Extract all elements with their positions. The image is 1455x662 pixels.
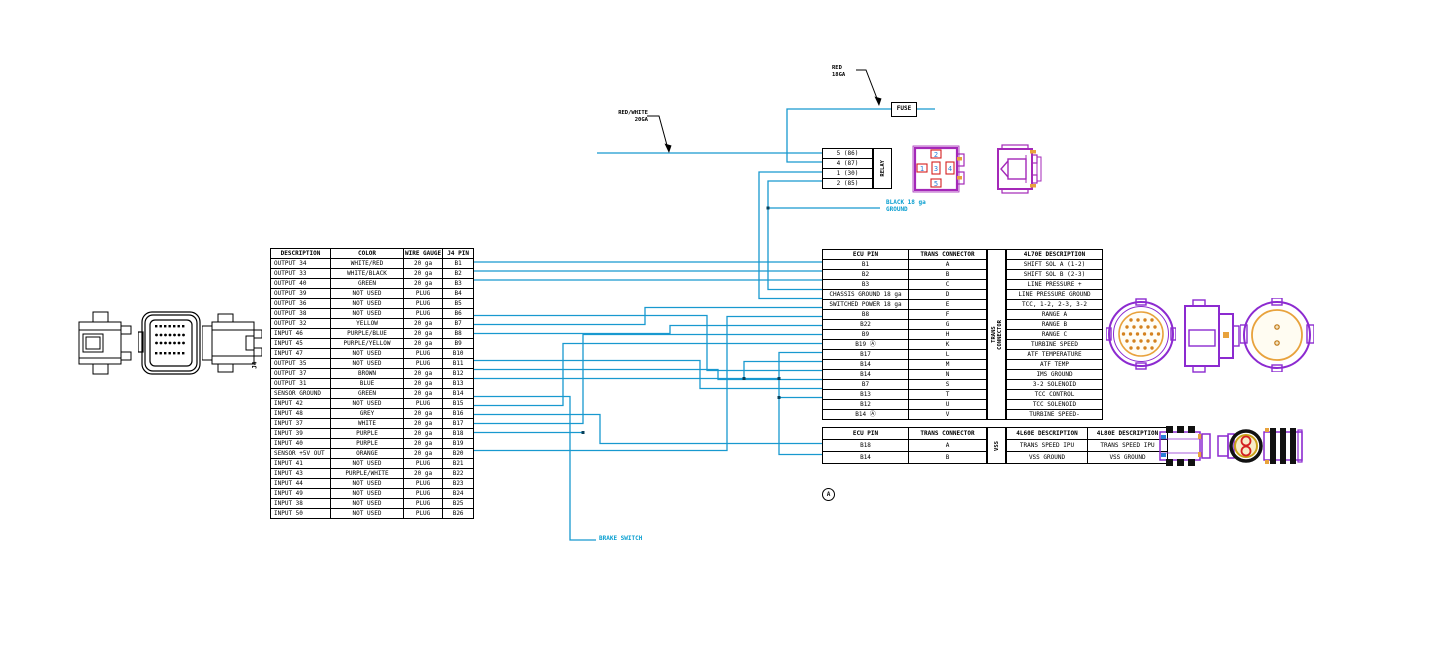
wire-b14-m: [779, 353, 822, 379]
cell: T: [909, 390, 987, 400]
cell: GREY: [331, 409, 404, 419]
cell: A: [909, 440, 987, 452]
cell: S: [909, 380, 987, 390]
cell: PLUG: [404, 399, 443, 409]
cell: TURBINE SPEED: [1007, 340, 1103, 350]
table-row: SENSOR GROUNDGREEN20 gaB14: [271, 389, 474, 399]
table-row: OUTPUT 33WHITE/BLACK20 gaB2: [271, 269, 474, 279]
cell: INPUT 50: [271, 509, 331, 519]
cell: PLUG: [404, 489, 443, 499]
relay-side-strip: RELAY: [873, 148, 892, 189]
cell: INPUT 44: [271, 479, 331, 489]
table-row: INPUT 38NOT USEDPLUGB25: [271, 499, 474, 509]
table-row: INPUT 48GREY20 gaB16: [271, 409, 474, 419]
cell: 2 (85): [823, 179, 873, 189]
table-row: B7S: [823, 380, 987, 390]
cell: 20 ga: [404, 429, 443, 439]
cell: B1: [443, 259, 474, 269]
table-row: B19 ⒶK: [823, 340, 987, 350]
cell: B3: [443, 279, 474, 289]
table-row: SWITCHED POWER 18 gaE: [823, 300, 987, 310]
vss-sensor-front-icon: [1218, 431, 1261, 461]
cell: B5: [443, 299, 474, 309]
cell: B3: [823, 280, 909, 290]
table-row: TURBINE SPEED-: [1007, 410, 1103, 420]
cell: OUTPUT 39: [271, 289, 331, 299]
table-row: OUTPUT 37BROWN20 gaB12: [271, 369, 474, 379]
table-row: TCC, 1-2, 2-3, 3-2: [1007, 300, 1103, 310]
red-wire-label: RED 18GA: [832, 65, 856, 78]
cell: NOT USED: [331, 299, 404, 309]
cell: PURPLE/WHITE: [331, 469, 404, 479]
cell: INPUT 37: [271, 419, 331, 429]
table-row: INPUT 42NOT USEDPLUGB15: [271, 399, 474, 409]
cell: B14: [823, 370, 909, 380]
cell: H: [909, 330, 987, 340]
wire-b22-g: [460, 317, 822, 451]
cell: SHIFT SOL A (1-2): [1007, 260, 1103, 270]
cell: B9: [823, 330, 909, 340]
cell: L: [909, 350, 987, 360]
cell: B17: [823, 350, 909, 360]
cell: OUTPUT 36: [271, 299, 331, 309]
table-row: 2 (85): [823, 179, 873, 189]
cell: SWITCHED POWER 18 ga: [823, 300, 909, 310]
col-header: J4 PIN: [443, 249, 474, 259]
cell: SENSOR +5V OUT: [271, 449, 331, 459]
table-row: 4 (87): [823, 159, 873, 169]
cell: F: [909, 310, 987, 320]
cell: INPUT 41: [271, 459, 331, 469]
table-row: B9H: [823, 330, 987, 340]
cell: TCC, 1-2, 2-3, 3-2: [1007, 300, 1103, 310]
cell: C: [909, 280, 987, 290]
table-row: INPUT 40PURPLE20 gaB19: [271, 439, 474, 449]
cell: INPUT 46: [271, 329, 331, 339]
vss-sensor-rear-icon: [1264, 428, 1302, 464]
cell: 20 ga: [404, 439, 443, 449]
trans-connector-side-icon: [1180, 296, 1240, 374]
cell: 20 ga: [404, 409, 443, 419]
cell: LINE PRESSURE GROUND: [1007, 290, 1103, 300]
cell: B8: [443, 329, 474, 339]
relay-pin-table: 5 (86)4 (87)1 (30)2 (85): [822, 148, 873, 189]
cell: 20 ga: [404, 449, 443, 459]
table-row: ATF TEMP: [1007, 360, 1103, 370]
cell: WHITE/BLACK: [331, 269, 404, 279]
table-row: VSS GROUNDVSS GROUND: [1007, 452, 1168, 464]
fuse-box: FUSE: [891, 102, 917, 117]
cell: B14: [443, 389, 474, 399]
relay-pin-2: 2: [934, 151, 938, 159]
table-row: B14 ⒶV: [823, 410, 987, 420]
cell: OUTPUT 31: [271, 379, 331, 389]
cell: INPUT 49: [271, 489, 331, 499]
cell: U: [909, 400, 987, 410]
cell: B24: [443, 489, 474, 499]
ecu-trans-table-right: 4L70E DESCRIPTIONSHIFT SOL A (1-2)SHIFT …: [1006, 249, 1103, 420]
cell: OUTPUT 38: [271, 309, 331, 319]
table-row: TRANS SPEED IPUTRANS SPEED IPU: [1007, 440, 1168, 452]
trans-connector-strip: TRANS CONNECTOR: [987, 249, 1006, 420]
cell: OUTPUT 35: [271, 359, 331, 369]
cell: TRANS SPEED IPU: [1088, 440, 1168, 452]
col-header: 4L80E DESCRIPTION: [1088, 428, 1168, 440]
table-row: IMS GROUND: [1007, 370, 1103, 380]
cell: INPUT 38: [271, 499, 331, 509]
cell: B6: [443, 309, 474, 319]
cell: B23: [443, 479, 474, 489]
cell: INPUT 39: [271, 429, 331, 439]
cell: 20 ga: [404, 319, 443, 329]
vss-table: ECU PINTRANS CONNECTORB18AB14B VSS 4L60E…: [822, 427, 1168, 464]
cell: INPUT 45: [271, 339, 331, 349]
cell: 3-2 SOLENOID: [1007, 380, 1103, 390]
col-header: ECU PIN: [823, 250, 909, 260]
cell: B13: [443, 379, 474, 389]
table-row: INPUT 39PURPLE20 gaB18: [271, 429, 474, 439]
cell: GREEN: [331, 389, 404, 399]
cell: 20 ga: [404, 329, 443, 339]
table-row: OUTPUT 32YELLOW20 gaB7: [271, 319, 474, 329]
cell: TCC SOLENOID: [1007, 400, 1103, 410]
relay-socket-side-icon: [990, 143, 1046, 195]
cell: NOT USED: [331, 359, 404, 369]
j4-pin-table: DESCRIPTIONCOLORWIRE GAUGEJ4 PINOUTPUT 3…: [270, 248, 474, 519]
table-row: 1 (30): [823, 169, 873, 179]
ecu-trans-table: ECU PINTRANS CONNECTORB1AB2BB3CCHASSIS G…: [822, 249, 1103, 420]
cell: B13: [823, 390, 909, 400]
table-row: B8F: [823, 310, 987, 320]
cell: INPUT 43: [271, 469, 331, 479]
cell: 20 ga: [404, 339, 443, 349]
cell: B2: [823, 270, 909, 280]
j4-connector-side-view-1-icon: [73, 306, 137, 376]
table-row: B13T: [823, 390, 987, 400]
table-row: RANGE A: [1007, 310, 1103, 320]
table-row: B12U: [823, 400, 987, 410]
cell: B: [909, 452, 987, 464]
col-header: 4L70E DESCRIPTION: [1007, 250, 1103, 260]
vss-sensor-connectors-icon: [1158, 424, 1304, 468]
cell: M: [909, 360, 987, 370]
cell: B10: [443, 349, 474, 359]
cell: B4: [443, 289, 474, 299]
cell: PURPLE/YELLOW: [331, 339, 404, 349]
cell: NOT USED: [331, 509, 404, 519]
col-header: TRANS CONNECTOR: [909, 250, 987, 260]
cell: B22: [823, 320, 909, 330]
cell: PLUG: [404, 299, 443, 309]
table-row: INPUT 41NOT USEDPLUGB21: [271, 459, 474, 469]
cell: B21: [443, 459, 474, 469]
relay-pin-5: 5: [934, 180, 938, 188]
cell: B26: [443, 509, 474, 519]
relay-label: RELAY: [880, 160, 886, 177]
cell: PLUG: [404, 499, 443, 509]
cell: B15: [443, 399, 474, 409]
table-row: OUTPUT 31BLUE20 gaB13: [271, 379, 474, 389]
cell: K: [909, 340, 987, 350]
table-row: B14N: [823, 370, 987, 380]
table-row: CHASSIS GROUND 18 gaD: [823, 290, 987, 300]
cell: NOT USED: [331, 459, 404, 469]
cell: 20 ga: [404, 379, 443, 389]
j4-connector-label: J4: [252, 362, 259, 369]
relay-pin-3: 3: [934, 165, 938, 173]
cell: B2: [443, 269, 474, 279]
cell: B18: [823, 440, 909, 452]
table-row: 3-2 SOLENOID: [1007, 380, 1103, 390]
cell: BLUE: [331, 379, 404, 389]
table-row: RANGE B: [1007, 320, 1103, 330]
cell: PLUG: [404, 479, 443, 489]
table-row: B17L: [823, 350, 987, 360]
col-header: 4L60E DESCRIPTION: [1007, 428, 1088, 440]
cell: NOT USED: [331, 399, 404, 409]
cell: B19 Ⓐ: [823, 340, 909, 350]
table-row: SHIFT SOL A (1-2): [1007, 260, 1103, 270]
cell: B1: [823, 260, 909, 270]
table-row: RANGE C: [1007, 330, 1103, 340]
leader-arrow-redwhite: [665, 144, 672, 154]
leader-line-red: [856, 70, 878, 101]
cell: 20 ga: [404, 389, 443, 399]
vss-connector-round-2pin-icon: [1240, 298, 1314, 372]
cell: V: [909, 410, 987, 420]
cell: B25: [443, 499, 474, 509]
cell: RANGE B: [1007, 320, 1103, 330]
cell: LINE PRESSURE +: [1007, 280, 1103, 290]
cell: PLUG: [404, 349, 443, 359]
cell: B22: [443, 469, 474, 479]
relay-socket-front-icon: 2 1 3 4 5: [912, 143, 970, 195]
cell: 20 ga: [404, 269, 443, 279]
cell: VSS GROUND: [1007, 452, 1088, 464]
cell: NOT USED: [331, 479, 404, 489]
cell: TCC CONTROL: [1007, 390, 1103, 400]
cell: 20 ga: [404, 369, 443, 379]
vss-sensor-side-icon: [1160, 426, 1210, 466]
trans-connector-round-24pin-icon: [1106, 298, 1176, 370]
cell: B9: [443, 339, 474, 349]
cell: G: [909, 320, 987, 330]
table-row: B14B: [823, 452, 987, 464]
cell: B20: [443, 449, 474, 459]
cell: 20 ga: [404, 259, 443, 269]
cell: 5 (86): [823, 149, 873, 159]
table-row: B18A: [823, 440, 987, 452]
col-header: ECU PIN: [823, 428, 909, 440]
table-row: INPUT 44NOT USEDPLUGB23: [271, 479, 474, 489]
table-row: B2B: [823, 270, 987, 280]
table-row: B1A: [823, 260, 987, 270]
relay-block: 5 (86)4 (87)1 (30)2 (85) RELAY: [822, 148, 892, 189]
cell: INPUT 42: [271, 399, 331, 409]
wiring-diagram-canvas: J4 DESCRIPTIONCOLORWIRE GAUGEJ4 PINOUTPU…: [0, 0, 1455, 662]
table-row: B14M: [823, 360, 987, 370]
cell: NOT USED: [331, 309, 404, 319]
cell: 20 ga: [404, 279, 443, 289]
table-row: LINE PRESSURE +: [1007, 280, 1103, 290]
cell: WHITE: [331, 419, 404, 429]
cell: B14 Ⓐ: [823, 410, 909, 420]
cell: B7: [443, 319, 474, 329]
cell: INPUT 48: [271, 409, 331, 419]
table-row: INPUT 37WHITE20 gaB17: [271, 419, 474, 429]
table-row: INPUT 46PURPLE/BLUE20 gaB8: [271, 329, 474, 339]
note-a-marker: A: [822, 488, 835, 501]
table-row: TCC CONTROL: [1007, 390, 1103, 400]
j4-connector-front-view-icon: [138, 302, 204, 380]
cell: PLUG: [404, 289, 443, 299]
table-row: OUTPUT 34WHITE/RED20 gaB1: [271, 259, 474, 269]
table-row: 5 (86): [823, 149, 873, 159]
cell: WHITE/RED: [331, 259, 404, 269]
cell: INPUT 40: [271, 439, 331, 449]
j4-pin-table-grid: DESCRIPTIONCOLORWIRE GAUGEJ4 PINOUTPUT 3…: [270, 248, 474, 519]
table-row: OUTPUT 35NOT USEDPLUGB11: [271, 359, 474, 369]
table-row: INPUT 45PURPLE/YELLOW20 gaB9: [271, 339, 474, 349]
wire-b12-u: [460, 361, 822, 389]
cell: PLUG: [404, 459, 443, 469]
cell: VSS GROUND: [1088, 452, 1168, 464]
cell: PLUG: [404, 509, 443, 519]
cell: B8: [823, 310, 909, 320]
cell: GREEN: [331, 279, 404, 289]
table-row: INPUT 50NOT USEDPLUGB26: [271, 509, 474, 519]
wire-b9-h: [460, 326, 822, 334]
cell: SHIFT SOL B (2-3): [1007, 270, 1103, 280]
cell: 20 ga: [404, 469, 443, 479]
col-header: DESCRIPTION: [271, 249, 331, 259]
cell: IMS GROUND: [1007, 370, 1103, 380]
cell: A: [909, 260, 987, 270]
cell: OUTPUT 40: [271, 279, 331, 289]
col-header: WIRE GAUGE: [404, 249, 443, 259]
cell: NOT USED: [331, 499, 404, 509]
cell: YELLOW: [331, 319, 404, 329]
table-row: ATF TEMPERATURE: [1007, 350, 1103, 360]
cell: OUTPUT 32: [271, 319, 331, 329]
cell: B17: [443, 419, 474, 429]
table-row: SENSOR +5V OUTORANGE20 gaB20: [271, 449, 474, 459]
col-header: TRANS CONNECTOR: [909, 428, 987, 440]
cell: 1 (30): [823, 169, 873, 179]
cell: B11: [443, 359, 474, 369]
cell: ORANGE: [331, 449, 404, 459]
fuse-label: FUSE: [897, 105, 911, 112]
cell: ATF TEMP: [1007, 360, 1103, 370]
cell: D: [909, 290, 987, 300]
table-row: SHIFT SOL B (2-3): [1007, 270, 1103, 280]
table-row: INPUT 43PURPLE/WHITE20 gaB22: [271, 469, 474, 479]
cell: E: [909, 300, 987, 310]
cell: RANGE C: [1007, 330, 1103, 340]
cell: NOT USED: [331, 489, 404, 499]
cell: PURPLE/BLUE: [331, 329, 404, 339]
cell: B7: [823, 380, 909, 390]
cell: SENSOR GROUND: [271, 389, 331, 399]
table-row: B22G: [823, 320, 987, 330]
cell: PLUG: [404, 359, 443, 369]
cell: PURPLE: [331, 439, 404, 449]
leader-arrow-red: [875, 97, 882, 107]
wire-relay85-chassis-ground: [768, 181, 822, 290]
cell: RANGE A: [1007, 310, 1103, 320]
wire-junction-dots: [582, 207, 781, 435]
cell: ATF TEMPERATURE: [1007, 350, 1103, 360]
table-row: OUTPUT 39NOT USEDPLUGB4: [271, 289, 474, 299]
cell: NOT USED: [331, 289, 404, 299]
red-white-wire-label: RED/WHITE 20GA: [602, 110, 648, 123]
table-row: TCC SOLENOID: [1007, 400, 1103, 410]
cell: CHASSIS GROUND 18 ga: [823, 290, 909, 300]
cell: B14: [823, 452, 909, 464]
cell: NOT USED: [331, 349, 404, 359]
wire-b18-vssa: [460, 415, 822, 444]
relay-pin-1: 1: [920, 165, 924, 173]
cell: 20 ga: [404, 419, 443, 429]
cell: INPUT 47: [271, 349, 331, 359]
cell: B18: [443, 429, 474, 439]
table-row: INPUT 49NOT USEDPLUGB24: [271, 489, 474, 499]
ecu-trans-table-left: ECU PINTRANS CONNECTORB1AB2BB3CCHASSIS G…: [822, 249, 987, 420]
table-row: OUTPUT 36NOT USEDPLUGB5: [271, 299, 474, 309]
cell: B12: [823, 400, 909, 410]
table-row: LINE PRESSURE GROUND: [1007, 290, 1103, 300]
cell: TURBINE SPEED-: [1007, 410, 1103, 420]
cell: B: [909, 270, 987, 280]
cell: OUTPUT 33: [271, 269, 331, 279]
cell: OUTPUT 37: [271, 369, 331, 379]
vss-strip-label: VSS: [994, 441, 1000, 451]
ground-wire-label: BLACK 18 ga GROUND: [886, 200, 926, 213]
table-row: OUTPUT 40GREEN20 gaB3: [271, 279, 474, 289]
trans-connector-strip-label: TRANS CONNECTOR: [991, 320, 1003, 350]
table-row: INPUT 47NOT USEDPLUGB10: [271, 349, 474, 359]
wire-b16-brake-switch: [460, 397, 596, 541]
vss-table-left: ECU PINTRANS CONNECTORB18AB14B: [822, 427, 987, 464]
col-header: COLOR: [331, 249, 404, 259]
cell: B16: [443, 409, 474, 419]
table-row: OUTPUT 38NOT USEDPLUGB6: [271, 309, 474, 319]
cell: B12: [443, 369, 474, 379]
cell: OUTPUT 34: [271, 259, 331, 269]
relay-pin-4: 4: [948, 165, 952, 173]
cell: B14: [823, 360, 909, 370]
cell: N: [909, 370, 987, 380]
brake-switch-label: BRAKE SWITCH: [599, 536, 642, 543]
cell: TRANS SPEED IPU: [1007, 440, 1088, 452]
cell: BROWN: [331, 369, 404, 379]
vss-table-right: 4L60E DESCRIPTION4L80E DESCRIPTIONTRANS …: [1006, 427, 1168, 464]
cell: 4 (87): [823, 159, 873, 169]
table-row: TURBINE SPEED: [1007, 340, 1103, 350]
table-row: B3C: [823, 280, 987, 290]
cell: PURPLE: [331, 429, 404, 439]
cell: PLUG: [404, 309, 443, 319]
cell: B19: [443, 439, 474, 449]
vss-strip: VSS: [987, 427, 1006, 464]
